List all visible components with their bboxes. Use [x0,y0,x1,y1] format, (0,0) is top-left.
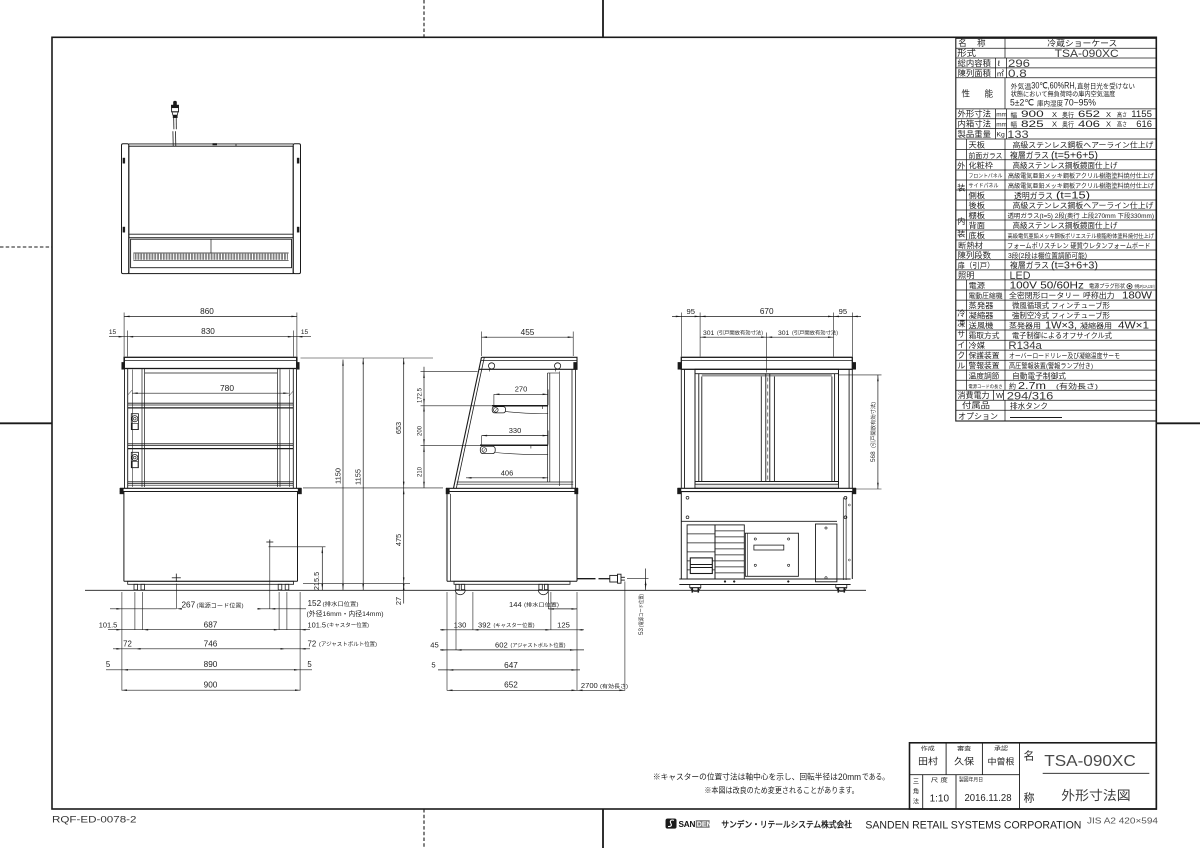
svg-text:約: 約 [1009,381,1016,390]
svg-text:R134a: R134a [1008,340,1042,352]
svg-text:法: 法 [913,798,919,806]
svg-text:装: 装 [957,183,965,193]
svg-text:5: 5 [431,660,435,669]
svg-text:天板: 天板 [969,140,986,150]
svg-text:2016.11.28: 2016.11.28 [965,793,1012,804]
svg-text:サンデン・リテールシステム株式会社: サンデン・リテールシステム株式会社 [721,819,852,830]
svg-text:900: 900 [204,680,218,689]
svg-text:392: 392 [478,620,491,629]
svg-text:凝縮器: 凝縮器 [969,310,994,320]
svg-text:幅: 幅 [1011,110,1018,119]
svg-text:高級ステンレス鋼板鏡面仕上げ: 高級ステンレス鋼板鏡面仕上げ [1013,160,1118,170]
svg-text:687: 687 [204,620,218,629]
svg-text:である。: である。 [862,773,889,782]
svg-text:475: 475 [394,534,403,546]
svg-text:装: 装 [957,228,965,238]
svg-text:1W×3,: 1W×3, [1045,320,1077,331]
svg-text:高級電気亜鉛メッキ鋼板アクリル樹脂塗料焼付仕上げ: 高級電気亜鉛メッキ鋼板アクリル樹脂塗料焼付仕上げ [1008,172,1154,180]
svg-text:568: 568 [870,451,877,462]
svg-text:側板: 側板 [969,190,986,200]
svg-text:庫内湿度: 庫内湿度 [1037,98,1064,107]
svg-text:(電源コード位置): (電源コード位置) [638,594,645,627]
svg-text:消費電力: 消費電力 [958,390,990,400]
svg-text:mm: mm [996,121,1007,128]
svg-text:330: 330 [509,426,522,435]
svg-text:746: 746 [204,639,218,648]
svg-text:電動圧縮機: 電動圧縮機 [969,291,1003,300]
svg-text:3段(2段は棚位置調節可能): 3段(2段は棚位置調節可能) [1008,251,1087,260]
svg-text:高さ: 高さ [1117,121,1127,129]
svg-text:(引戸開放有効寸法): (引戸開放有効寸法) [870,402,877,448]
svg-text:(電源コード位置): (電源コード位置) [197,601,244,609]
svg-text:作成: 作成 [921,744,936,752]
svg-text:称: 称 [977,38,986,48]
svg-text:送風機: 送風機 [969,320,994,330]
svg-text:温度調節: 温度調節 [969,371,1000,380]
svg-text:製図年月日: 製図年月日 [959,776,983,784]
svg-text:田村: 田村 [918,756,938,767]
svg-text:72: 72 [308,639,317,648]
svg-text:X: X [1106,110,1111,119]
svg-text:Kg: Kg [997,132,1006,139]
svg-text:断熱材: 断熱材 [958,240,983,250]
svg-text:95: 95 [839,307,847,316]
svg-text:455: 455 [521,328,535,337]
svg-text:780: 780 [220,383,234,393]
svg-text:高級電気亜鉛メッキ鋼板ポリエステル樹脂粉体塗料焼付仕上げ: 高級電気亜鉛メッキ鋼板ポリエステル樹脂粉体塗料焼付仕上げ [1008,232,1155,240]
svg-text:15: 15 [109,329,117,336]
svg-text:強制空冷式 フィンチューブ形: 強制空冷式 フィンチューブ形 [1012,311,1110,320]
svg-text:(引戸開放有効寸法): (引戸開放有効寸法) [717,330,763,337]
svg-text:蒸発器: 蒸発器 [969,300,994,310]
svg-text:ル: ル [957,362,965,371]
svg-text:名: 名 [958,38,967,48]
svg-text:(アジャストボルト位置): (アジャストボルト位置) [511,641,566,649]
svg-text:(キャスター位置): (キャスター位置) [494,621,535,629]
svg-text:陳列段数: 陳列段数 [958,250,992,260]
svg-text:蒸発器用: 蒸発器用 [1009,321,1041,330]
svg-text:(t=5+6+5): (t=5+6+5) [1051,150,1098,161]
svg-text:860: 860 [200,307,214,316]
svg-text:中曽根: 中曽根 [988,757,1015,767]
svg-text:幅: 幅 [1011,120,1018,129]
svg-text:215.5: 215.5 [312,572,321,590]
svg-text:(排水口位置): (排水口位置) [524,601,559,609]
svg-text:イ: イ [957,341,965,350]
svg-text:内: 内 [957,216,965,226]
svg-text:890: 890 [204,660,218,669]
svg-text:130: 130 [454,620,467,629]
svg-text:保護装置: 保護装置 [969,351,1000,360]
svg-text:能: 能 [985,89,994,99]
svg-text:X: X [1106,120,1111,129]
svg-text:奥行: 奥行 [1062,120,1074,129]
svg-text:45: 45 [430,640,438,649]
svg-text:高級電気亜鉛メッキ鋼板アクリル樹脂塗料焼付仕上げ: 高級電気亜鉛メッキ鋼板アクリル樹脂塗料焼付仕上げ [1008,182,1154,190]
svg-text:0.8: 0.8 [1008,68,1027,80]
svg-text:サイドパネル: サイドパネル [969,183,999,190]
svg-text:653: 653 [394,422,403,434]
svg-text:棚板: 棚板 [969,210,986,220]
svg-text:180W: 180W [1122,290,1152,302]
svg-text:101.5: 101.5 [308,620,327,629]
svg-text:サ: サ [957,330,965,339]
svg-text:照明: 照明 [958,271,975,280]
svg-text:DEN: DEN [697,822,712,829]
svg-text:冷蔵ショーケース: 冷蔵ショーケース [1047,38,1117,48]
svg-text:フロントパネル: フロントパネル [969,173,1003,180]
svg-text:化粧枠: 化粧枠 [969,160,994,170]
svg-text:形式: 形式 [957,48,976,58]
svg-text:(有効長さ): (有効長さ) [1056,381,1098,390]
svg-text:602: 602 [495,640,508,649]
svg-text:(アジャストボルト位置): (アジャストボルト位置) [319,640,377,648]
svg-text:後板: 後板 [969,200,986,210]
svg-text:1155: 1155 [354,469,363,485]
svg-text:称: 称 [1024,791,1035,805]
svg-text:外気温: 外気温 [1011,82,1032,91]
svg-text:総内容積: 総内容積 [958,58,992,68]
svg-text:高さ: 高さ [1117,111,1127,119]
svg-text:270: 270 [515,385,528,394]
svg-text:647: 647 [504,661,518,670]
svg-text:(外径16mm・内径14mm): (外径16mm・内径14mm) [307,609,384,618]
svg-text:267: 267 [182,601,196,610]
svg-text:95: 95 [686,307,694,316]
svg-text:性: 性 [962,89,971,99]
svg-text:扉（引戸）: 扉（引戸） [958,260,995,270]
svg-text:冷: 冷 [957,308,965,318]
svg-text:200: 200 [417,425,423,436]
svg-text:オーバーロードリレー及び凝縮温度サーモ: オーバーロードリレー及び凝縮温度サーモ [1009,351,1120,360]
svg-text:三: 三 [913,779,919,786]
svg-text:406: 406 [501,468,514,477]
svg-text:TSA-090XC: TSA-090XC [1055,48,1119,60]
svg-text:電源プラグ形状: 電源プラグ形状 [1089,282,1125,290]
svg-text:高級ステンレス鋼板ヘアーライン仕上げ: 高級ステンレス鋼板ヘアーライン仕上げ [1013,140,1154,150]
svg-text:陳列面積: 陳列面積 [958,68,992,78]
svg-text:27: 27 [394,597,403,605]
svg-text:2700: 2700 [581,681,598,690]
svg-text:警報装置: 警報装置 [969,361,1000,370]
svg-text:70~95%: 70~95% [1064,98,1096,108]
svg-text:※キャスターの位置寸法は軸中心を示し、回転半径は: ※キャスターの位置寸法は軸中心を示し、回転半径は [653,772,838,782]
svg-text:ク: ク [957,351,965,360]
svg-text:144: 144 [509,600,522,609]
svg-text:830: 830 [201,327,215,336]
svg-text:20mm: 20mm [838,772,861,782]
svg-text:(有効長さ): (有効長さ) [600,682,628,690]
svg-text:652: 652 [504,681,518,690]
svg-text:冷媒: 冷媒 [969,340,986,350]
svg-text:凍: 凍 [957,319,965,329]
svg-text:複層ガラス: 複層ガラス [1010,150,1049,160]
svg-text:外形寸法: 外形寸法 [958,109,992,119]
svg-text:透明ガラス: 透明ガラス [1014,190,1053,200]
svg-text:5: 5 [106,660,111,669]
svg-text:付属品: 付属品 [962,400,990,410]
svg-text:(引戸開放有効寸法): (引戸開放有効寸法) [792,330,838,337]
svg-text:承認: 承認 [994,744,1009,752]
svg-text:(排水口位置): (排水口位置) [323,600,359,608]
svg-text:尺 度: 尺 度 [931,776,949,784]
svg-text:TSA-090XC: TSA-090XC [1044,753,1136,770]
svg-text:電源コードの長さ: 電源コードの長さ [969,383,1003,390]
svg-text:微風循環式 フィンチューブ形: 微風循環式 フィンチューブ形 [1012,301,1110,310]
svg-text:霜取方式: 霜取方式 [969,331,1000,340]
svg-text:101.5: 101.5 [99,621,118,630]
svg-text:久保: 久保 [954,756,974,767]
svg-text:301: 301 [778,330,790,337]
svg-text:透明ガラス(t=5) 2段(奥行 上段270mm 下段330: 透明ガラス(t=5) 2段(奥行 上段270mm 下段330mm) [1008,212,1155,220]
svg-text:電子制御によるオフサイクル式: 電子制御によるオフサイクル式 [1012,331,1112,340]
svg-text:1:10: 1:10 [930,794,950,805]
svg-text:(t=3+6+3): (t=3+6+3) [1051,260,1098,271]
svg-text:外形寸法図: 外形寸法図 [1061,788,1130,803]
svg-text:301: 301 [703,330,715,337]
svg-text:RQF-ED-0078-2: RQF-ED-0078-2 [52,815,137,825]
svg-text:全密閉形ロータリー: 全密閉形ロータリー [1009,291,1080,300]
svg-text:53: 53 [638,627,645,635]
svg-text:名: 名 [1024,749,1035,763]
svg-text:152: 152 [308,599,322,608]
svg-text:5±2℃: 5±2℃ [1010,98,1034,108]
svg-text:外: 外 [957,161,965,171]
svg-text:210: 210 [417,466,423,477]
svg-text:オプション: オプション [958,412,998,421]
svg-text:X: X [1052,120,1057,129]
svg-text:フォームポリスチレン 硬質ウレタンフォームボード: フォームポリスチレン 硬質ウレタンフォームボード [1007,241,1151,250]
svg-text:mm: mm [996,111,1007,118]
svg-text:ℓ: ℓ [997,59,1001,68]
svg-text:(t=15): (t=15) [1056,191,1090,202]
svg-text:100V 50/60Hz: 100V 50/60Hz [1010,280,1084,292]
svg-text:※本図は改良のため変更されることがあります。: ※本図は改良のため変更されることがあります。 [704,785,858,795]
svg-text:背面: 背面 [969,220,986,230]
svg-text:凝縮器用: 凝縮器用 [1080,321,1112,330]
svg-text:前面ガラス: 前面ガラス [969,151,1003,160]
svg-text:審査: 審査 [957,744,972,752]
svg-text:直射日光を受けない: 直射日光を受けない [1077,82,1135,91]
svg-text:5: 5 [307,660,312,669]
svg-text:呼称出力: 呼称出力 [1083,291,1115,300]
svg-text:内箱寸法: 内箱寸法 [958,119,992,129]
svg-text:自動電子制御式: 自動電子制御式 [1012,370,1066,380]
svg-text:4W×1: 4W×1 [1118,320,1150,331]
svg-text:SAN: SAN [679,820,696,829]
svg-text:406: 406 [1078,119,1100,130]
svg-text:670: 670 [760,307,774,316]
svg-text:SANDEN RETAIL SYSTEMS CORPORAT: SANDEN RETAIL SYSTEMS CORPORATION [865,820,1081,832]
svg-text:㎡: ㎡ [997,69,1005,78]
svg-text:電源: 電源 [969,281,986,290]
svg-text:(キャスター位置): (キャスター位置) [327,621,369,629]
svg-text:底板: 底板 [969,230,986,240]
svg-text:高級ステンレス鋼板ヘアーライン仕上げ: 高級ステンレス鋼板ヘアーライン仕上げ [1013,200,1154,210]
svg-text:W: W [996,391,1004,400]
svg-text:角: 角 [913,788,919,796]
svg-text:616: 616 [1136,119,1152,130]
svg-text:奥行: 奥行 [1062,110,1074,119]
svg-text:JIS A2 420×594: JIS A2 420×594 [1087,817,1159,826]
svg-text:125: 125 [557,620,570,629]
svg-text:30℃,60%RH,: 30℃,60%RH, [1031,81,1076,91]
svg-text:133: 133 [1007,129,1028,141]
svg-text:72: 72 [123,639,132,648]
svg-text:X: X [1052,110,1057,119]
svg-text:高級ステンレス鋼板鏡面仕上げ: 高級ステンレス鋼板鏡面仕上げ [1013,220,1118,230]
svg-text:172.5: 172.5 [417,387,423,403]
svg-text:複層ガラス: 複層ガラス [1010,260,1049,270]
svg-text:製品重量: 製品重量 [958,129,992,139]
svg-text:1150: 1150 [333,468,342,484]
svg-text:排水タンク: 排水タンク [1010,400,1048,410]
svg-text:15: 15 [301,329,309,336]
svg-text:高圧警報装置(警報ランプ付き): 高圧警報装置(警報ランプ付き) [1009,361,1093,370]
